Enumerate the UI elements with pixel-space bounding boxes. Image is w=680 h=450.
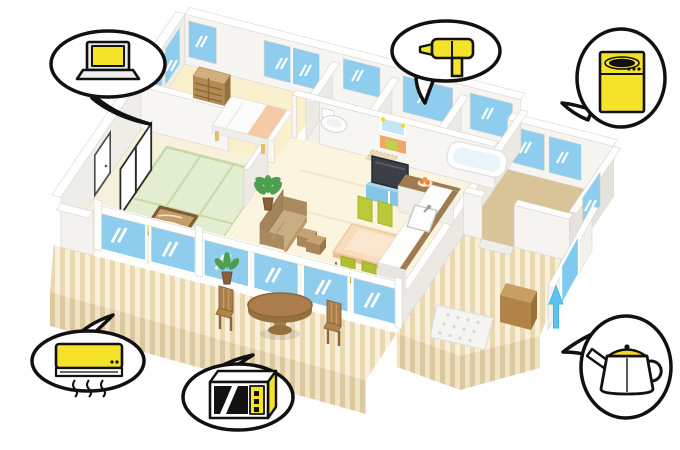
- illustration-canvas: [0, 0, 680, 450]
- washing-machine-icon: [600, 52, 644, 112]
- dining-chair2: [378, 201, 392, 227]
- storage-box: [500, 283, 537, 330]
- bubble-electric-kettle: [563, 316, 671, 418]
- house-appliances-illustration: [0, 0, 680, 450]
- bubble-washing-machine: [562, 29, 665, 127]
- dining-chair: [358, 196, 372, 222]
- laptop-icon: [77, 42, 139, 79]
- microwave-oven-icon: [210, 371, 276, 418]
